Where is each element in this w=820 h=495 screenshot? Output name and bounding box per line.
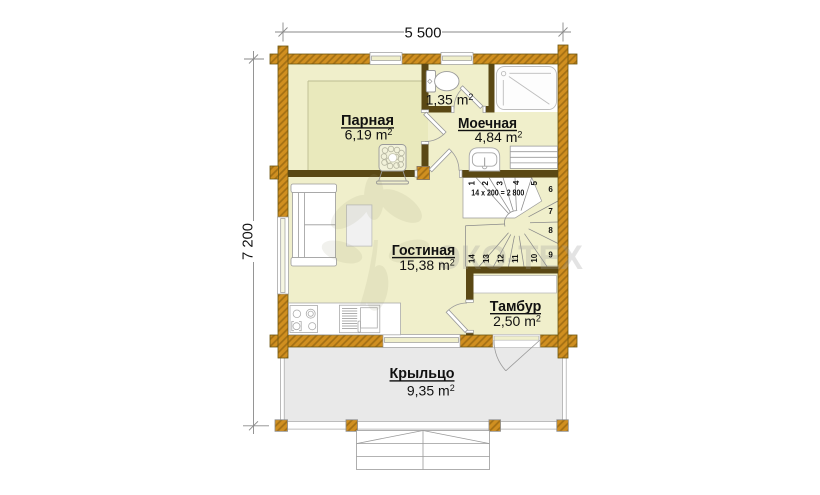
svg-text:6,19 m2: 6,19 m2	[345, 126, 393, 142]
svg-text:2: 2	[481, 181, 490, 186]
svg-text:8: 8	[548, 226, 553, 235]
svg-text:11: 11	[511, 254, 520, 263]
svg-text:13: 13	[482, 254, 491, 263]
svg-text:3: 3	[495, 181, 504, 186]
svg-text:14: 14	[468, 254, 477, 263]
svg-text:1: 1	[468, 181, 477, 186]
svg-text:6: 6	[548, 185, 553, 194]
svg-text:Крыльцо: Крыльцо	[390, 366, 455, 382]
svg-text:4: 4	[512, 180, 521, 185]
svg-text:5: 5	[530, 181, 539, 186]
svg-text:5 500: 5 500	[405, 25, 442, 42]
svg-text:14 x 200 = 2 800: 14 x 200 = 2 800	[471, 188, 524, 197]
svg-text:10: 10	[530, 253, 539, 262]
svg-text:4,84 m2: 4,84 m2	[475, 129, 523, 145]
svg-text:12: 12	[497, 254, 506, 263]
svg-text:7: 7	[548, 207, 553, 216]
svg-text:15,38 m2: 15,38 m2	[399, 257, 455, 273]
svg-text:1,35 m2: 1,35 m2	[426, 92, 474, 108]
svg-text:9,35 m2: 9,35 m2	[407, 383, 455, 399]
svg-text:7 200: 7 200	[239, 223, 256, 260]
svg-text:9: 9	[548, 251, 553, 260]
svg-text:2,50 m2: 2,50 m2	[493, 313, 541, 329]
